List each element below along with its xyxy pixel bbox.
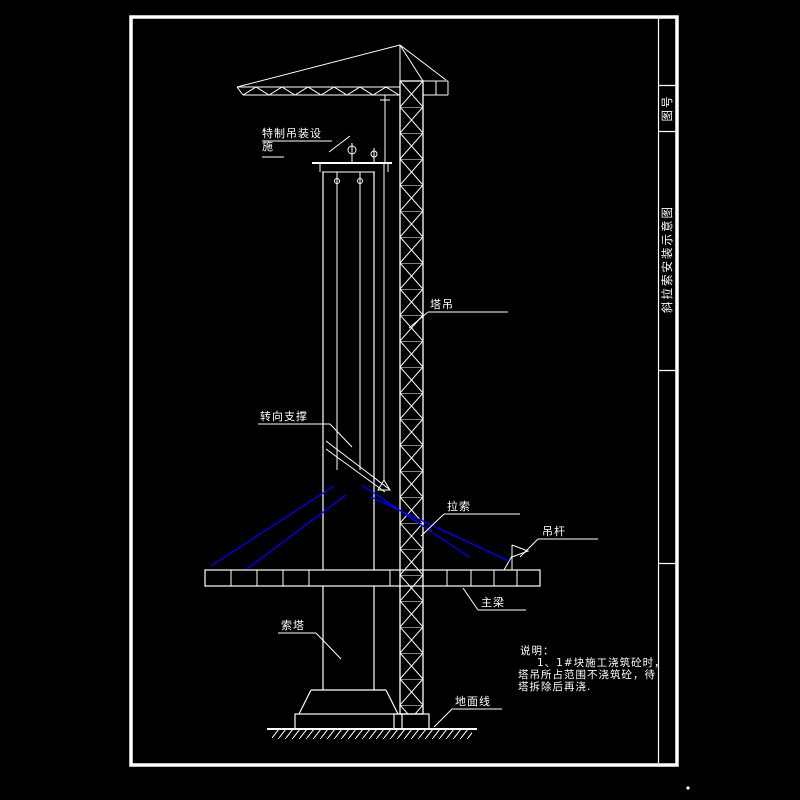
hoist-rope-drawing — [378, 163, 390, 490]
leader-lines — [258, 136, 598, 727]
crane-mast-drawing — [394, 81, 429, 729]
notes-heading: 说明： — [520, 645, 555, 657]
drawing-canvas — [0, 0, 800, 800]
pylon-drawing — [323, 172, 374, 570]
label-lifting-device: 特制吊装设施 — [262, 127, 322, 153]
turning-support-drawing — [326, 441, 389, 492]
notes-line-1: 1、1#块施工浇筑砼时， — [537, 657, 666, 669]
cad-drawing-viewport: 特制吊装设施 塔吊 转向支撑 拉索 吊杆 主梁 索塔 地面线 说明： 1、1#块… — [0, 0, 800, 800]
label-ground-line: 地面线 — [455, 695, 491, 708]
label-tower-crane: 塔吊 — [430, 298, 454, 311]
stay-cables-drawing — [211, 485, 509, 569]
label-main-girder: 主梁 — [481, 596, 505, 609]
ground-line-drawing — [267, 729, 477, 739]
title-block-drawing-number: 图号 — [659, 95, 675, 122]
hanger-rod-drawing — [504, 545, 528, 570]
label-hanger-rod: 吊杆 — [542, 525, 566, 538]
main-girder-drawing — [205, 570, 540, 586]
title-block-drawing-title: 斜拉索安装示意图 — [659, 205, 675, 313]
notes-line-3: 塔拆除后再浇. — [518, 681, 591, 693]
lifting-device-drawing — [312, 143, 392, 172]
foundation-drawing — [295, 586, 402, 729]
notes-line-2: 塔吊所占范围不浇筑砼，待 — [518, 669, 656, 681]
label-pylon: 索塔 — [281, 619, 305, 632]
label-turning-support: 转向支撑 — [260, 410, 308, 423]
label-stay-cable: 拉索 — [447, 500, 471, 513]
stray-mark — [686, 786, 689, 789]
